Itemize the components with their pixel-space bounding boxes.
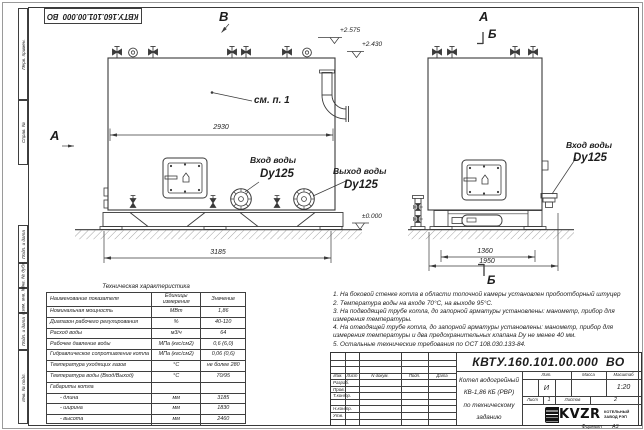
table-row: - длина мм 3185 bbox=[47, 393, 245, 404]
skid-base-left-view bbox=[100, 213, 343, 230]
note-item: 3. На подводящей трубе котла, до запорно… bbox=[333, 308, 640, 323]
inlet-right-size: Dy125 bbox=[573, 152, 607, 164]
table-cell: Рабочее давление воды bbox=[47, 339, 151, 349]
table-cell: Номинальная мощность bbox=[47, 307, 151, 317]
table-cell: мм bbox=[151, 415, 200, 425]
safety-valve-icon bbox=[283, 47, 292, 59]
table-row: - ширина мм 1830 bbox=[47, 403, 245, 414]
safety-valve-icon bbox=[149, 47, 158, 59]
elevation-lower: +2.430 bbox=[362, 41, 382, 48]
table-cell: Температура уходящих газов bbox=[47, 361, 151, 371]
table-cell: Температура воды (Вход/Выход) bbox=[47, 372, 151, 382]
sheets-label: Листов bbox=[555, 396, 590, 404]
table-cell bbox=[200, 383, 245, 393]
safety-valve-icon bbox=[433, 47, 442, 59]
note-item: 4. На отводящей трубе котла, до запорной… bbox=[333, 324, 640, 339]
table-cell: МПа (кгс/см2) bbox=[151, 350, 201, 360]
view-letter-a-right: А bbox=[479, 9, 488, 24]
table-cell: 0,6 (6,0) bbox=[200, 339, 245, 349]
table-row: Номинальная мощность МВт 1,86 bbox=[47, 306, 245, 317]
table-cell: МПа (кгс/см2) bbox=[151, 339, 201, 349]
table-row: - высота мм 2460 bbox=[47, 414, 245, 425]
scale-value: 1:20 bbox=[606, 379, 641, 397]
inlet-nozzle-right-view bbox=[541, 161, 557, 208]
table-row: Гидравлическое сопротивление котла МПа (… bbox=[47, 349, 245, 360]
view-letter-v: В bbox=[219, 9, 228, 24]
ground-hatch bbox=[408, 230, 574, 239]
massa-header: Масса bbox=[571, 371, 606, 379]
table-cell: °С bbox=[151, 361, 201, 371]
dim-1950: 1950 bbox=[461, 258, 513, 265]
table-cell: Гидравлическое сопротивление котла bbox=[47, 350, 151, 360]
table-header-cell: Наименование показателя bbox=[47, 293, 151, 306]
masshtab-header: Масштаб bbox=[606, 371, 641, 379]
ground-hatch bbox=[75, 230, 362, 239]
table-row: Габариты котла bbox=[47, 382, 245, 393]
furnace-door-right-view bbox=[462, 160, 506, 200]
gas-outlet-elbow bbox=[320, 70, 349, 122]
table-row: Температура уходящих газов °С не более 2… bbox=[47, 360, 245, 371]
table-cell: 40-110 bbox=[200, 318, 245, 328]
top-stub-flange-icon bbox=[129, 48, 138, 57]
safety-valve-icon bbox=[529, 47, 538, 59]
lit-header: Лит. bbox=[522, 371, 571, 379]
water-outlet-flange bbox=[294, 189, 315, 210]
drawing-title-line: КВ-1,86 КБ (РВР) bbox=[464, 387, 514, 399]
note-item: 5. Остальные технические требования по О… bbox=[333, 341, 640, 349]
kvzr-logo-icon bbox=[545, 407, 559, 423]
role-tkontr: Т.контр. bbox=[331, 392, 361, 399]
outlet-size: Dy125 bbox=[344, 179, 378, 191]
table-header-cell: Значение bbox=[200, 293, 245, 306]
safety-valve-icon bbox=[448, 47, 457, 59]
table-cell: % bbox=[151, 318, 201, 328]
drawing-title-line: по техническому заданию bbox=[456, 400, 522, 425]
burner-cylinder bbox=[452, 215, 502, 226]
safety-valve-icon bbox=[228, 47, 237, 59]
table-cell: Габариты котла bbox=[47, 383, 151, 393]
tech-table: Наименование показателя Единицы измерени… bbox=[46, 292, 246, 424]
rev-col-podp: Подп. bbox=[401, 373, 428, 380]
kvzr-logo-subtext-line: ЗАВОД РЭП bbox=[604, 414, 641, 419]
kvzr-logo-text: KVZR bbox=[559, 407, 601, 422]
table-cell: 1,86 bbox=[200, 307, 245, 317]
table-cell: мм bbox=[151, 404, 200, 414]
inlet-left-size: Dy125 bbox=[260, 168, 294, 180]
drawing-title: Котел водогрейный КВ-1,86 КБ (РВР) по те… bbox=[456, 371, 522, 425]
drawing-title-line: Котел водогрейный bbox=[459, 375, 519, 387]
table-cell: °С bbox=[151, 372, 201, 382]
table-cell: МВт bbox=[151, 307, 201, 317]
safety-valve-icon bbox=[511, 47, 520, 59]
table-cell: - длина bbox=[47, 394, 151, 404]
table-cell: 0,06 (0,6) bbox=[200, 350, 245, 360]
table-cell: 2460 bbox=[200, 415, 245, 425]
water-inlet-flange bbox=[231, 189, 252, 210]
top-stub-flange-icon bbox=[303, 48, 312, 57]
table-cell bbox=[151, 383, 201, 393]
view-letter-a-left: А bbox=[50, 128, 59, 143]
table-cell: 70/95 bbox=[200, 372, 245, 382]
table-cell: Расход воды bbox=[47, 329, 151, 339]
drain-valve-icon bbox=[274, 196, 280, 208]
elevation-ground: ±0.000 bbox=[362, 213, 382, 220]
drain-valve-icon bbox=[210, 196, 216, 208]
format-label: Формат bbox=[582, 424, 603, 430]
table-cell: Диапазон рабочего регулирования bbox=[47, 318, 151, 328]
table-cell: 1830 bbox=[200, 404, 245, 414]
callout-see-item-1: см. п. 1 bbox=[254, 95, 290, 106]
dim-3185: 3185 bbox=[192, 249, 244, 256]
notes-list: 1. На боковой стенке котла в области топ… bbox=[333, 291, 640, 349]
table-cell: мм bbox=[151, 394, 200, 404]
dim-2930: 2930 bbox=[196, 124, 246, 131]
table-cell: 64 bbox=[200, 329, 245, 339]
sheet-value: 1 bbox=[543, 396, 555, 404]
table-cell: не более 280 bbox=[200, 361, 245, 371]
inlet-left-label: Вход воды bbox=[250, 155, 296, 165]
table-cell: м3/ч bbox=[151, 329, 201, 339]
table-cell: 3185 bbox=[200, 394, 245, 404]
format-value: А3 bbox=[612, 424, 618, 430]
inspection-door-left-view bbox=[163, 158, 207, 198]
table-row: Диапазон рабочего регулирования % 40-110 bbox=[47, 317, 245, 328]
elevation-upper: +2.575 bbox=[340, 27, 360, 34]
section-letter-b-top: Б bbox=[488, 27, 497, 41]
title-block: КВТУ.160.101.00.000 ВО Изм. Лист N докум… bbox=[330, 352, 642, 426]
role-utv: Утв. bbox=[331, 412, 361, 419]
inlet-right-label: Вход воды bbox=[566, 140, 612, 150]
note-item: 2. Температура воды на входе 70°С, на вы… bbox=[333, 300, 640, 308]
table-header-cell: Единицы измерения bbox=[151, 293, 201, 306]
table-row: Рабочее давление воды МПа (кгс/см2) 0,6 … bbox=[47, 338, 245, 349]
tech-table-title: Техническая характеристика bbox=[46, 283, 246, 290]
table-row: Расход воды м3/ч 64 bbox=[47, 328, 245, 339]
dim-1360: 1360 bbox=[459, 248, 511, 255]
safety-valve-icon bbox=[242, 47, 251, 59]
title-block-doc-number: КВТУ.160.101.00.000 ВО bbox=[456, 353, 641, 371]
table-row: Температура воды (Вход/Выход) °С 70/95 bbox=[47, 371, 245, 382]
drawing-sheet: Перв. примен. Справ. № Подп. и дата Инв.… bbox=[0, 0, 644, 430]
kvzr-logo-subtext: КОТЕЛЬНЫЙ ЗАВОД РЭП bbox=[604, 409, 641, 419]
table-cell: - высота bbox=[47, 415, 151, 425]
right-view bbox=[408, 47, 574, 240]
format-note: Формат А3 bbox=[560, 424, 640, 430]
rev-col-data: Дата bbox=[428, 373, 456, 380]
drain-pipe-right-view bbox=[411, 196, 425, 230]
lit-value: И bbox=[538, 379, 554, 397]
rev-col-ndokum: N докум. bbox=[359, 373, 401, 380]
table-cell: - ширина bbox=[47, 404, 151, 414]
note-item: 1. На боковой стенке котла в области топ… bbox=[333, 291, 640, 299]
section-letter-b-bottom: Б bbox=[487, 273, 496, 287]
outlet-label: Выход воды bbox=[333, 166, 386, 176]
left-view bbox=[75, 47, 362, 240]
skid-base-right-view bbox=[430, 211, 546, 230]
sheets-value: 2 bbox=[590, 396, 641, 404]
table-header-row: Наименование показателя Единицы измерени… bbox=[47, 293, 245, 306]
safety-valve-icon bbox=[113, 47, 122, 59]
sheet-label: Лист bbox=[522, 396, 543, 404]
drain-valve-icon bbox=[130, 196, 136, 208]
